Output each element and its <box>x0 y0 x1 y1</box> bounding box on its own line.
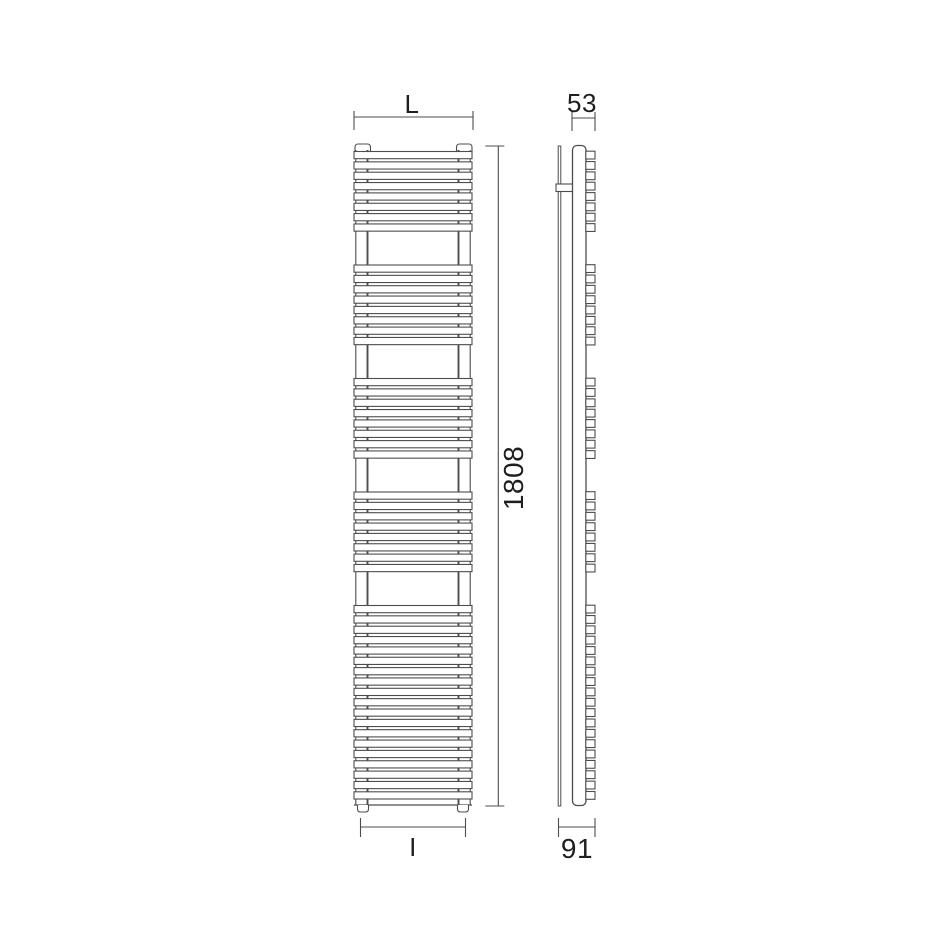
radiator-tube <box>354 379 472 386</box>
radiator-tube <box>354 647 472 654</box>
tube-end <box>586 667 595 675</box>
tube-end <box>586 440 595 448</box>
radiator-tube <box>354 606 472 613</box>
tube-end <box>586 420 595 428</box>
tube-end <box>586 523 595 531</box>
tube-end <box>586 337 595 345</box>
radiator-tube <box>354 451 472 458</box>
dim-label-body-depth: 53 <box>567 90 597 116</box>
front-view <box>354 144 472 812</box>
radiator-tube <box>354 616 472 623</box>
tube-end <box>586 554 595 562</box>
radiator-tube <box>354 523 472 530</box>
tube-end <box>586 750 595 758</box>
radiator-tube <box>354 337 472 344</box>
tube-end <box>586 616 595 624</box>
tube-end <box>586 193 595 201</box>
radiator-tube <box>354 792 472 799</box>
side-view <box>556 146 595 807</box>
tube-end <box>586 151 595 159</box>
radiator-tube <box>354 193 472 200</box>
tube-end <box>586 399 595 407</box>
radiator-tube <box>354 306 472 313</box>
tube-end <box>586 502 595 510</box>
tube-end <box>586 389 595 397</box>
tube-end <box>586 265 595 273</box>
radiator-tube <box>354 265 472 272</box>
wall-bracket-rail <box>558 146 561 806</box>
tube-end <box>586 781 595 789</box>
tube-end <box>586 378 595 386</box>
tube-end <box>586 224 595 232</box>
radiator-tube <box>354 678 472 685</box>
radiator-tube <box>354 224 472 231</box>
tube-end <box>586 792 595 800</box>
radiator-tube <box>354 399 472 406</box>
radiator-tube <box>354 533 472 540</box>
tube-end <box>586 533 595 541</box>
tube-end <box>586 409 595 417</box>
tube-end <box>586 771 595 779</box>
radiator-tube <box>354 441 472 448</box>
tube-end <box>586 213 595 221</box>
radiator-tube <box>354 430 472 437</box>
tube-end <box>586 327 595 335</box>
radiator-tube <box>354 750 472 757</box>
radiator-tube <box>354 152 472 159</box>
dim-label-axial-width: I <box>409 834 417 860</box>
tube-end <box>586 512 595 520</box>
tube-end <box>586 760 595 768</box>
foot <box>458 805 469 812</box>
collector-profile <box>573 146 587 806</box>
tube-end <box>586 296 595 304</box>
tube-end <box>586 306 595 314</box>
tube-end <box>586 657 595 665</box>
radiator-tube <box>354 668 472 675</box>
foot <box>358 805 369 812</box>
radiator-tube <box>354 719 472 726</box>
tube-end <box>586 636 595 644</box>
radiator-tube <box>354 761 472 768</box>
tube-end <box>586 688 595 696</box>
tube-end <box>586 740 595 748</box>
dim-label-height: 1808 <box>500 446 528 510</box>
tube-end <box>586 647 595 655</box>
radiator-tube <box>354 492 472 499</box>
tube-end <box>586 430 595 438</box>
radiator-tube <box>354 699 472 706</box>
radiator-tube <box>354 203 472 210</box>
radiator-tube <box>354 688 472 695</box>
radiator-tube <box>354 709 472 716</box>
radiator-tube <box>354 657 472 664</box>
dim-label-wall-depth: 91 <box>561 835 593 863</box>
radiator-tube <box>354 730 472 737</box>
tube-end <box>586 451 595 459</box>
tube-end <box>586 182 595 190</box>
tube-end <box>586 698 595 706</box>
bracket-arm <box>556 184 573 192</box>
drawing-linework <box>0 0 950 950</box>
radiator-tube <box>354 214 472 221</box>
radiator-tube <box>354 771 472 778</box>
tube-end <box>586 605 595 613</box>
radiator-tube <box>354 327 472 334</box>
tube-end <box>586 203 595 211</box>
radiator-tube <box>354 554 472 561</box>
radiator-tube <box>354 286 472 293</box>
tube-end <box>586 719 595 727</box>
radiator-tube <box>354 544 472 551</box>
tube-end <box>586 709 595 717</box>
radiator-tube <box>354 183 472 190</box>
radiator-tube <box>354 781 472 788</box>
radiator-tube <box>354 637 472 644</box>
radiator-tube <box>354 420 472 427</box>
radiator-tube <box>354 740 472 747</box>
tube-end <box>586 729 595 737</box>
tube-end <box>586 492 595 500</box>
tube-end <box>586 275 595 283</box>
radiator-tube <box>354 296 472 303</box>
radiator-tube <box>354 172 472 179</box>
radiator-tube <box>354 410 472 417</box>
tube-end <box>586 285 595 293</box>
radiator-tube <box>354 513 472 520</box>
tube-end <box>586 316 595 324</box>
dim-label-overall-width: L <box>405 91 420 117</box>
tube-end <box>586 626 595 634</box>
radiator-technical-drawing: L 53 1808 I 91 <box>0 0 950 950</box>
radiator-tube <box>354 162 472 169</box>
radiator-tube <box>354 564 472 571</box>
tube-end <box>586 564 595 572</box>
radiator-tube <box>354 317 472 324</box>
tube-end <box>586 678 595 686</box>
radiator-tube <box>354 626 472 633</box>
tube-end <box>586 172 595 180</box>
radiator-tube <box>354 389 472 396</box>
radiator-tube <box>354 502 472 509</box>
radiator-tube <box>354 275 472 282</box>
tube-end <box>586 543 595 551</box>
tube-end <box>586 162 595 170</box>
